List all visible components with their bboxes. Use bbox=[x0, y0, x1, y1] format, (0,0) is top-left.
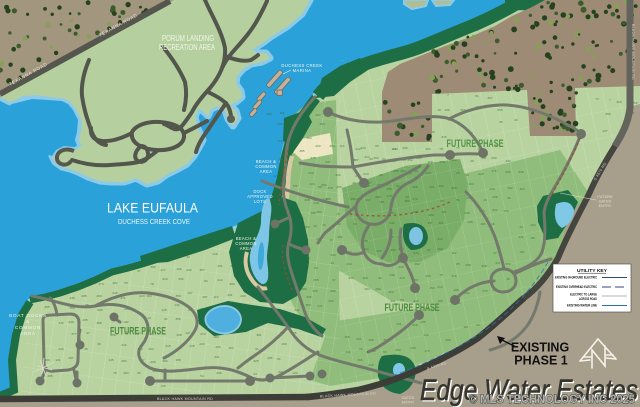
svg-text:355: 355 bbox=[44, 305, 49, 309]
svg-text:183: 183 bbox=[480, 222, 485, 226]
svg-text:182: 182 bbox=[123, 320, 128, 324]
svg-text:416: 416 bbox=[335, 173, 340, 177]
svg-text:294: 294 bbox=[364, 287, 369, 291]
svg-text:PHASE 1: PHASE 1 bbox=[514, 354, 568, 368]
svg-text:206: 206 bbox=[336, 185, 341, 189]
svg-text:239: 239 bbox=[68, 320, 73, 324]
svg-text:376: 376 bbox=[439, 160, 444, 164]
svg-text:ELECTRIC TO LARGE: ELECTRIC TO LARGE bbox=[570, 293, 598, 297]
svg-text:343: 343 bbox=[505, 159, 510, 163]
svg-text:131: 131 bbox=[55, 358, 60, 362]
svg-text:205: 205 bbox=[420, 320, 425, 324]
svg-text:412: 412 bbox=[355, 147, 360, 151]
svg-text:25: 25 bbox=[359, 347, 363, 351]
svg-text:LOTS: LOTS bbox=[254, 199, 266, 204]
svg-text:223: 223 bbox=[139, 294, 144, 298]
svg-text:132: 132 bbox=[423, 333, 428, 337]
svg-text:409: 409 bbox=[240, 294, 245, 298]
svg-text:286: 286 bbox=[350, 197, 355, 201]
svg-text:© MLS TECHNOLOGY INC 2025: © MLS TECHNOLOGY INC 2025 bbox=[469, 392, 635, 406]
svg-text:194: 194 bbox=[530, 223, 535, 227]
svg-text:353: 353 bbox=[306, 136, 311, 140]
svg-text:130: 130 bbox=[313, 201, 318, 205]
svg-text:240: 240 bbox=[410, 346, 415, 350]
svg-text:291: 291 bbox=[217, 264, 222, 268]
svg-text:382: 382 bbox=[112, 281, 117, 285]
svg-text:65: 65 bbox=[375, 144, 379, 148]
svg-text:290: 290 bbox=[491, 156, 496, 160]
svg-text:355: 355 bbox=[497, 108, 502, 112]
svg-text:377: 377 bbox=[71, 332, 76, 336]
svg-text:163: 163 bbox=[319, 122, 324, 126]
svg-text:114: 114 bbox=[340, 144, 345, 148]
svg-text:157: 157 bbox=[202, 295, 207, 299]
svg-text:37: 37 bbox=[332, 278, 336, 282]
svg-text:46: 46 bbox=[499, 120, 503, 124]
svg-text:249: 249 bbox=[308, 171, 313, 175]
svg-text:417: 417 bbox=[365, 198, 370, 202]
svg-text:289: 289 bbox=[97, 308, 102, 312]
svg-text:195: 195 bbox=[344, 335, 349, 339]
svg-text:53: 53 bbox=[383, 350, 387, 354]
svg-text:205: 205 bbox=[412, 185, 417, 189]
svg-text:142: 142 bbox=[174, 303, 179, 307]
svg-text:123: 123 bbox=[376, 249, 381, 253]
svg-text:47: 47 bbox=[86, 331, 90, 335]
svg-text:150: 150 bbox=[215, 345, 220, 349]
svg-text:FUTURE PHASE: FUTURE PHASE bbox=[110, 326, 166, 338]
svg-text:ENTRY: ENTRY bbox=[599, 204, 612, 208]
svg-text:347: 347 bbox=[353, 158, 358, 162]
svg-text:324: 324 bbox=[348, 276, 353, 280]
svg-text:75: 75 bbox=[439, 273, 443, 277]
svg-text:&: & bbox=[26, 319, 30, 324]
svg-text:19: 19 bbox=[437, 108, 441, 112]
svg-text:30: 30 bbox=[97, 342, 101, 346]
svg-text:200: 200 bbox=[375, 287, 380, 291]
svg-text:200: 200 bbox=[96, 294, 101, 298]
svg-text:410: 410 bbox=[162, 277, 167, 281]
svg-text:142: 142 bbox=[294, 308, 299, 312]
svg-text:300: 300 bbox=[505, 262, 510, 266]
svg-text:99: 99 bbox=[137, 371, 141, 375]
svg-text:68: 68 bbox=[314, 266, 318, 270]
svg-text:217: 217 bbox=[160, 268, 165, 272]
svg-text:229: 229 bbox=[478, 172, 483, 176]
svg-text:223: 223 bbox=[309, 182, 314, 186]
svg-text:133: 133 bbox=[160, 384, 165, 388]
svg-text:420: 420 bbox=[312, 289, 317, 293]
svg-text:293: 293 bbox=[390, 248, 395, 252]
svg-text:292: 292 bbox=[507, 186, 512, 190]
svg-text:235: 235 bbox=[425, 171, 430, 175]
svg-text:402: 402 bbox=[414, 262, 419, 266]
svg-text:370: 370 bbox=[399, 276, 404, 280]
svg-text:37: 37 bbox=[137, 269, 141, 273]
svg-text:219: 219 bbox=[212, 252, 217, 256]
svg-text:226: 226 bbox=[112, 291, 117, 295]
svg-text:BLACK HAWK MOUNTAIN RD: BLACK HAWK MOUNTAIN RD bbox=[157, 397, 213, 401]
svg-text:380: 380 bbox=[229, 282, 234, 286]
svg-text:128: 128 bbox=[362, 276, 367, 280]
svg-text:252: 252 bbox=[505, 170, 510, 174]
svg-text:123: 123 bbox=[292, 371, 297, 375]
svg-text:COMMON: COMMON bbox=[15, 325, 41, 330]
svg-text:44: 44 bbox=[465, 173, 469, 177]
svg-text:78: 78 bbox=[150, 282, 154, 286]
svg-text:ENTRY: ENTRY bbox=[402, 401, 415, 405]
svg-text:73: 73 bbox=[336, 212, 340, 216]
svg-text:366: 366 bbox=[357, 358, 362, 362]
svg-text:40: 40 bbox=[514, 118, 518, 122]
svg-text:331: 331 bbox=[292, 184, 297, 188]
svg-text:241: 241 bbox=[227, 293, 232, 297]
svg-text:188: 188 bbox=[310, 211, 315, 215]
svg-text:127: 127 bbox=[602, 129, 607, 133]
svg-text:300: 300 bbox=[395, 348, 400, 352]
svg-text:208: 208 bbox=[445, 338, 450, 342]
svg-text:13: 13 bbox=[519, 225, 523, 229]
svg-text:126: 126 bbox=[467, 220, 472, 224]
svg-text:109: 109 bbox=[279, 111, 284, 115]
svg-text:EXISTING IN-GROUND ELECTRIC: EXISTING IN-GROUND ELECTRIC bbox=[555, 276, 597, 280]
svg-text:154: 154 bbox=[316, 210, 321, 214]
svg-text:317: 317 bbox=[495, 261, 500, 265]
svg-text:221: 221 bbox=[317, 304, 322, 308]
svg-text:AREA: AREA bbox=[240, 246, 253, 251]
svg-text:401: 401 bbox=[429, 185, 434, 189]
svg-text:325: 325 bbox=[306, 295, 311, 299]
svg-text:285: 285 bbox=[47, 374, 52, 378]
svg-text:138: 138 bbox=[69, 296, 74, 300]
svg-text:350: 350 bbox=[305, 303, 310, 307]
svg-text:54: 54 bbox=[200, 374, 204, 378]
svg-text:193: 193 bbox=[503, 209, 508, 213]
svg-text:228: 228 bbox=[464, 211, 469, 215]
svg-text:392: 392 bbox=[162, 359, 167, 363]
svg-text:88: 88 bbox=[531, 236, 535, 240]
svg-text:EXISTING OVERHEAD ELECTRIC: EXISTING OVERHEAD ELECTRIC bbox=[556, 285, 597, 289]
svg-text:GATED: GATED bbox=[599, 200, 612, 204]
svg-text:167: 167 bbox=[463, 325, 468, 329]
svg-text:325: 325 bbox=[253, 359, 258, 363]
svg-text:333: 333 bbox=[451, 186, 456, 190]
svg-text:357: 357 bbox=[487, 96, 492, 100]
svg-text:324: 324 bbox=[519, 187, 524, 191]
svg-text:412: 412 bbox=[437, 237, 442, 241]
svg-text:312: 312 bbox=[492, 208, 497, 212]
svg-text:254: 254 bbox=[121, 359, 126, 363]
svg-text:381: 381 bbox=[256, 333, 261, 337]
svg-text:240: 240 bbox=[489, 187, 494, 191]
svg-text:44: 44 bbox=[483, 198, 487, 202]
svg-text:BLACK HAWK MOUNTAIN RD: BLACK HAWK MOUNTAIN RD bbox=[631, 24, 635, 80]
svg-text:233: 233 bbox=[398, 265, 403, 269]
svg-text:398: 398 bbox=[330, 289, 335, 293]
svg-text:268: 268 bbox=[465, 263, 470, 267]
svg-text:318: 318 bbox=[451, 274, 456, 278]
svg-text:341: 341 bbox=[518, 235, 523, 239]
svg-text:78: 78 bbox=[439, 147, 443, 151]
svg-text:60: 60 bbox=[318, 185, 322, 189]
svg-text:127: 127 bbox=[315, 113, 320, 117]
svg-text:16: 16 bbox=[322, 223, 326, 227]
svg-text:218: 218 bbox=[330, 253, 335, 257]
svg-text:179: 179 bbox=[491, 169, 496, 173]
svg-text:46: 46 bbox=[491, 222, 495, 226]
svg-text:168: 168 bbox=[175, 358, 180, 362]
svg-text:93: 93 bbox=[476, 323, 480, 327]
svg-text:285: 285 bbox=[267, 356, 272, 360]
svg-text:338: 338 bbox=[492, 195, 497, 199]
svg-text:136: 136 bbox=[176, 267, 181, 271]
svg-text:294: 294 bbox=[150, 265, 155, 269]
svg-text:237: 237 bbox=[325, 160, 330, 164]
svg-text:314: 314 bbox=[363, 172, 368, 176]
svg-text:303: 303 bbox=[425, 147, 430, 151]
svg-text:51: 51 bbox=[456, 198, 460, 202]
svg-text:216: 216 bbox=[121, 343, 126, 347]
svg-text:290: 290 bbox=[393, 169, 398, 173]
svg-text:197: 197 bbox=[187, 291, 192, 295]
svg-text:303: 303 bbox=[329, 144, 334, 148]
svg-text:60: 60 bbox=[124, 281, 128, 285]
svg-text:358: 358 bbox=[150, 360, 155, 364]
svg-text:259: 259 bbox=[429, 286, 434, 290]
svg-text:110: 110 bbox=[214, 295, 219, 299]
svg-text:29: 29 bbox=[456, 171, 460, 175]
svg-text:173: 173 bbox=[98, 282, 103, 286]
svg-text:MARINA: MARINA bbox=[293, 68, 312, 73]
svg-text:274: 274 bbox=[413, 251, 418, 255]
svg-text:FUTURE: FUTURE bbox=[597, 195, 613, 199]
svg-text:157: 157 bbox=[427, 221, 432, 225]
svg-text:408: 408 bbox=[176, 333, 181, 337]
svg-text:359: 359 bbox=[175, 294, 180, 298]
svg-text:339: 339 bbox=[400, 169, 405, 173]
svg-text:354: 354 bbox=[228, 346, 233, 350]
svg-text:119: 119 bbox=[428, 160, 433, 164]
svg-text:175: 175 bbox=[482, 289, 487, 293]
svg-text:49: 49 bbox=[470, 159, 474, 163]
svg-text:46: 46 bbox=[507, 196, 511, 200]
svg-text:61: 61 bbox=[255, 347, 259, 351]
svg-text:13: 13 bbox=[147, 316, 151, 320]
svg-text:291: 291 bbox=[356, 337, 361, 341]
svg-text:236: 236 bbox=[216, 371, 221, 375]
svg-text:125: 125 bbox=[189, 344, 194, 348]
svg-text:181: 181 bbox=[379, 200, 384, 204]
svg-text:304: 304 bbox=[148, 347, 153, 351]
svg-text:160: 160 bbox=[281, 342, 286, 346]
svg-text:387: 387 bbox=[199, 268, 204, 272]
svg-text:356: 356 bbox=[386, 187, 391, 191]
svg-text:42: 42 bbox=[352, 181, 356, 185]
svg-text:315: 315 bbox=[165, 344, 170, 348]
svg-text:GATED: GATED bbox=[402, 396, 415, 400]
svg-text:73: 73 bbox=[595, 97, 599, 101]
svg-text:240: 240 bbox=[389, 273, 394, 277]
svg-text:130: 130 bbox=[345, 350, 350, 354]
svg-text:405: 405 bbox=[81, 294, 86, 298]
svg-text:179: 179 bbox=[424, 349, 429, 353]
svg-text:302: 302 bbox=[373, 156, 378, 160]
svg-text:270: 270 bbox=[412, 197, 417, 201]
svg-text:PORUM LANDING: PORUM LANDING bbox=[162, 34, 214, 43]
svg-text:ACROSS ROAD: ACROSS ROAD bbox=[579, 297, 597, 301]
svg-text:380: 380 bbox=[404, 199, 409, 203]
svg-text:342: 342 bbox=[58, 321, 63, 325]
svg-text:49: 49 bbox=[506, 277, 510, 281]
svg-text:259: 259 bbox=[321, 183, 326, 187]
svg-text:44: 44 bbox=[253, 372, 257, 376]
svg-text:297: 297 bbox=[68, 356, 73, 360]
svg-text:235: 235 bbox=[82, 318, 87, 322]
svg-text:333: 333 bbox=[360, 146, 365, 150]
svg-text:205: 205 bbox=[186, 268, 191, 272]
svg-text:EXISTING WATER LINE: EXISTING WATER LINE bbox=[567, 304, 598, 308]
svg-text:328: 328 bbox=[481, 264, 486, 268]
svg-text:370: 370 bbox=[327, 186, 332, 190]
svg-text:264: 264 bbox=[438, 184, 443, 188]
svg-text:112: 112 bbox=[452, 251, 457, 255]
svg-text:82: 82 bbox=[204, 279, 208, 283]
svg-text:405: 405 bbox=[402, 146, 407, 150]
svg-text:109: 109 bbox=[444, 108, 449, 112]
svg-text:178: 178 bbox=[386, 194, 391, 198]
svg-text:259: 259 bbox=[375, 195, 380, 199]
svg-text:332: 332 bbox=[328, 299, 333, 303]
svg-text:AREA: AREA bbox=[260, 169, 273, 174]
svg-text:14: 14 bbox=[330, 261, 334, 265]
svg-text:290: 290 bbox=[437, 247, 442, 251]
svg-text:282: 282 bbox=[337, 235, 342, 239]
svg-text:7: 7 bbox=[447, 93, 449, 97]
svg-text:414: 414 bbox=[437, 285, 442, 289]
svg-text:61: 61 bbox=[427, 248, 431, 252]
svg-text:BOAT DOCKS: BOAT DOCKS bbox=[9, 313, 47, 318]
svg-text:322: 322 bbox=[388, 290, 393, 294]
svg-text:DUCHESS CREEK COVE: DUCHESS CREEK COVE bbox=[118, 219, 190, 226]
svg-text:393: 393 bbox=[123, 371, 128, 375]
svg-text:216: 216 bbox=[277, 139, 282, 143]
svg-text:29: 29 bbox=[440, 199, 444, 203]
svg-text:321: 321 bbox=[438, 221, 443, 225]
svg-text:LAKE EUFAULA: LAKE EUFAULA bbox=[107, 201, 198, 216]
svg-text:352: 352 bbox=[178, 277, 183, 281]
svg-text:40: 40 bbox=[378, 276, 382, 280]
svg-text:330: 330 bbox=[392, 147, 397, 151]
svg-text:7: 7 bbox=[609, 98, 611, 102]
svg-text:396: 396 bbox=[368, 338, 373, 342]
svg-text:61: 61 bbox=[164, 317, 168, 321]
svg-text:388: 388 bbox=[428, 213, 433, 217]
svg-text:243: 243 bbox=[58, 347, 63, 351]
svg-text:388: 388 bbox=[96, 321, 101, 325]
svg-text:151: 151 bbox=[519, 250, 524, 254]
svg-text:335: 335 bbox=[277, 122, 282, 126]
svg-text:104: 104 bbox=[468, 182, 473, 186]
svg-text:375: 375 bbox=[310, 156, 315, 160]
svg-text:61: 61 bbox=[277, 357, 281, 361]
svg-text:53: 53 bbox=[353, 222, 357, 226]
svg-text:95: 95 bbox=[379, 173, 383, 177]
svg-text:385: 385 bbox=[299, 149, 304, 153]
svg-text:125: 125 bbox=[161, 308, 166, 312]
svg-text:RECREATION AREA: RECREATION AREA bbox=[159, 43, 215, 52]
svg-text:166: 166 bbox=[425, 274, 430, 278]
svg-text:232: 232 bbox=[389, 221, 394, 225]
svg-text:329: 329 bbox=[616, 100, 621, 104]
svg-text:EXISTING: EXISTING bbox=[511, 341, 569, 355]
svg-text:233: 233 bbox=[199, 342, 204, 346]
svg-text:85: 85 bbox=[456, 262, 460, 266]
svg-text:FUTURE PHASE: FUTURE PHASE bbox=[447, 138, 504, 150]
svg-text:79: 79 bbox=[113, 371, 117, 375]
svg-text:131: 131 bbox=[396, 322, 401, 326]
svg-text:360: 360 bbox=[605, 112, 610, 116]
svg-text:36: 36 bbox=[84, 347, 88, 351]
svg-text:318: 318 bbox=[412, 323, 417, 327]
svg-text:127: 127 bbox=[185, 331, 190, 335]
svg-text:161: 161 bbox=[441, 210, 446, 214]
svg-text:51: 51 bbox=[475, 94, 479, 98]
svg-text:392: 392 bbox=[266, 112, 271, 116]
svg-text:321: 321 bbox=[214, 355, 219, 359]
svg-text:266: 266 bbox=[453, 288, 458, 292]
svg-text:395: 395 bbox=[175, 317, 180, 321]
svg-text:46: 46 bbox=[369, 157, 373, 161]
svg-text:14: 14 bbox=[329, 238, 333, 242]
svg-text:UTILITY KEY: UTILITY KEY bbox=[577, 268, 607, 273]
svg-text:412: 412 bbox=[217, 278, 222, 282]
svg-text:145: 145 bbox=[108, 358, 113, 362]
svg-text:290: 290 bbox=[315, 144, 320, 148]
svg-text:AREA: AREA bbox=[20, 331, 36, 336]
svg-text:42: 42 bbox=[313, 224, 317, 228]
svg-text:309: 309 bbox=[518, 170, 523, 174]
svg-text:96: 96 bbox=[364, 239, 368, 243]
svg-text:47: 47 bbox=[493, 251, 497, 255]
svg-text:FUTURE PHASE: FUTURE PHASE bbox=[385, 302, 440, 314]
svg-text:349: 349 bbox=[368, 363, 373, 367]
svg-text:395: 395 bbox=[313, 278, 318, 282]
svg-text:414: 414 bbox=[346, 262, 351, 266]
svg-text:274: 274 bbox=[200, 332, 205, 336]
